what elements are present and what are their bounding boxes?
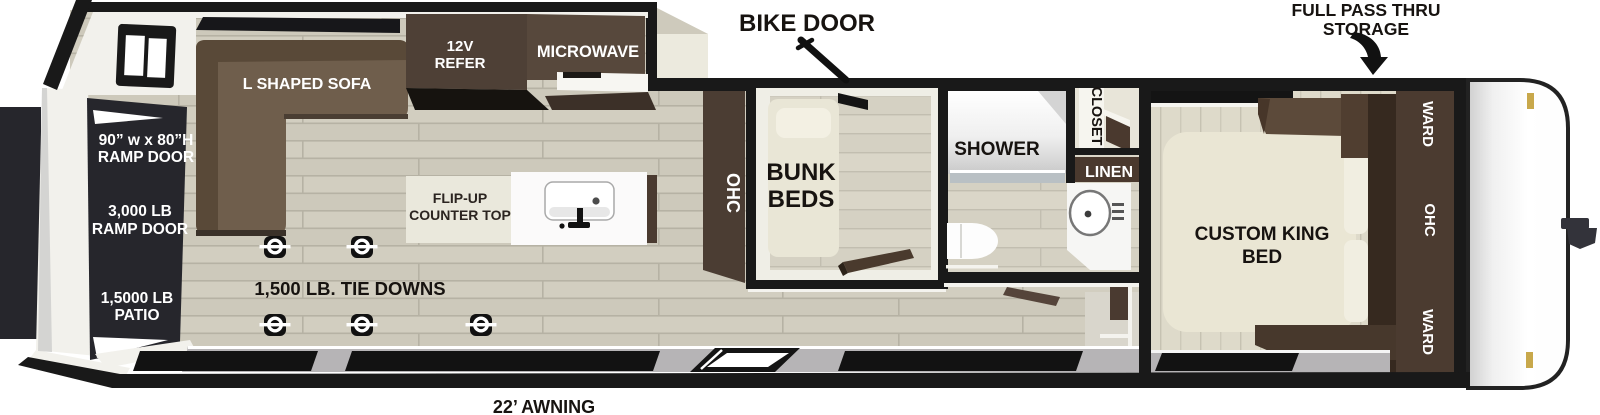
svg-text:COUNTER TOP: COUNTER TOP: [409, 207, 511, 223]
svg-text:WARD: WARD: [1419, 101, 1436, 147]
svg-text:FULL PASS THRU: FULL PASS THRU: [1291, 0, 1440, 20]
svg-text:RAMP DOOR: RAMP DOOR: [92, 221, 188, 238]
svg-text:1,500 LB. TIE DOWNS: 1,500 LB. TIE DOWNS: [254, 278, 445, 299]
svg-text:1,5000 LB: 1,5000 LB: [101, 290, 173, 307]
svg-text:90” w x 80”H: 90” w x 80”H: [99, 132, 194, 149]
svg-text:OHC: OHC: [1421, 203, 1438, 237]
svg-text:BUNK: BUNK: [766, 159, 836, 186]
svg-text:22’ AWNING: 22’ AWNING: [493, 397, 595, 415]
svg-text:OHC: OHC: [723, 173, 743, 213]
svg-text:SHOWER: SHOWER: [954, 139, 1040, 160]
svg-text:WARD: WARD: [1419, 309, 1436, 355]
svg-text:3,000 LB: 3,000 LB: [108, 203, 172, 220]
svg-text:MICROWAVE: MICROWAVE: [537, 43, 639, 61]
svg-text:BIKE DOOR: BIKE DOOR: [739, 10, 875, 37]
svg-text:CUSTOM KING: CUSTOM KING: [1195, 224, 1330, 245]
svg-text:BED: BED: [1242, 247, 1282, 268]
svg-text:PATIO: PATIO: [114, 307, 159, 324]
svg-text:L SHAPED SOFA: L SHAPED SOFA: [243, 76, 372, 93]
svg-text:CLOSET: CLOSET: [1088, 87, 1104, 146]
svg-text:12V: 12V: [447, 38, 474, 55]
svg-text:REFER: REFER: [435, 55, 486, 72]
svg-text:BEDS: BEDS: [768, 186, 835, 213]
svg-text:RAMP DOOR: RAMP DOOR: [98, 149, 194, 166]
svg-text:FLIP-UP: FLIP-UP: [433, 190, 487, 206]
svg-text:LINEN: LINEN: [1085, 164, 1133, 181]
